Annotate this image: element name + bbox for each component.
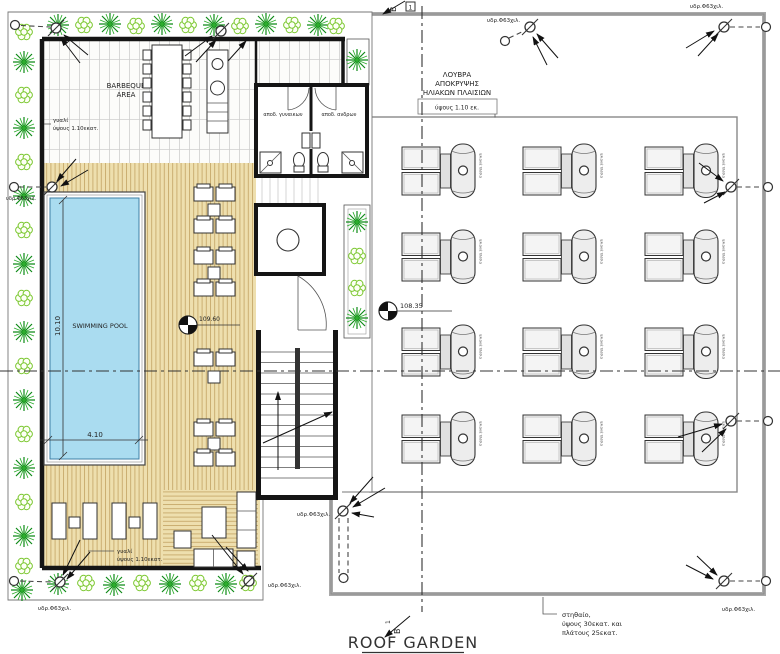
drain-label: υδρ.Φ63χιλ. bbox=[268, 583, 301, 589]
coffee-table bbox=[202, 507, 226, 538]
louver-note-line3: ΗΛΙΑΚΩΝ ΠΛΑΙΣΙΩΝ bbox=[423, 89, 491, 97]
side-table bbox=[208, 267, 220, 279]
sunbed bbox=[112, 503, 126, 539]
barbeque-label-2: AREA bbox=[117, 91, 136, 99]
toilet-icon bbox=[318, 153, 329, 173]
pool-width-value: 4.10 bbox=[87, 431, 103, 439]
section-number-top: 1 bbox=[409, 5, 413, 12]
wc-women-label: αποδ. γυναικων bbox=[263, 112, 302, 118]
plan-canvas: ηλιακά πλ/σια ΛΟΥΒΡΑ ΑΠΟΚΡΥΨΗΣ ΗΛΙΑΚΩΝ Π… bbox=[0, 0, 780, 654]
swimming-pool: SWIMMING POOL 10.10 4.10 bbox=[40, 192, 148, 465]
parapet-note-2: ύψους 30εκατ. και bbox=[562, 620, 622, 628]
stair-divider-wall bbox=[295, 348, 300, 469]
side-table bbox=[208, 371, 220, 383]
side-table bbox=[208, 438, 220, 450]
sunbed bbox=[52, 503, 66, 539]
drain-label: υδρ.Φ63χιλ. bbox=[297, 512, 330, 518]
parapet-note-1: στηθαίο, bbox=[562, 611, 591, 619]
glass-note-top-2: ύψους 1.10εκατ. bbox=[53, 125, 99, 132]
roof-garden-plan: ηλιακά πλ/σια ΛΟΥΒΡΑ ΑΠΟΚΡΥΨΗΣ ΗΛΙΑΚΩΝ Π… bbox=[0, 0, 780, 654]
parapet-note-3: πλάτους 25εκατ. bbox=[562, 629, 617, 637]
dining-table bbox=[152, 45, 182, 138]
toilet-icon bbox=[294, 153, 305, 173]
burner-icon bbox=[211, 81, 225, 95]
restrooms: αποδ. γυναικων αποδ. ανδρων bbox=[256, 85, 367, 176]
drawing-title: ROOF GARDEN bbox=[348, 633, 478, 653]
roof-level-value: 108.35 bbox=[400, 302, 423, 310]
sofa-right bbox=[237, 492, 256, 548]
louver-note-line2: ΑΠΟΚΡΥΨΗΣ bbox=[435, 80, 479, 88]
deck-level-value: 109.60 bbox=[199, 316, 220, 323]
stool bbox=[174, 531, 191, 548]
pool-length-value: 10.10 bbox=[54, 316, 62, 336]
wc-men-label: αποδ. ανδρων bbox=[322, 112, 357, 118]
side-table bbox=[208, 204, 220, 216]
drain-label: υδρ.Φ63χιλ. bbox=[6, 196, 37, 202]
sunbed bbox=[143, 503, 157, 539]
bbq-counter bbox=[207, 50, 228, 133]
glass-note-bottom-2: ύψους 1.10εκατ. bbox=[117, 556, 163, 563]
louver-height-note: ύψους 1.10 εκ. bbox=[435, 105, 479, 112]
sunbed bbox=[83, 503, 97, 539]
drain-label: υδρ.Φ63χιλ. bbox=[487, 18, 520, 24]
solar-roof-block: ΛΟΥΒΡΑ ΑΠΟΚΡΥΨΗΣ ΗΛΙΑΚΩΝ ΠΛΑΙΣΙΩΝ ύψους … bbox=[331, 14, 764, 594]
drain-label: υδρ.Φ63χιλ. bbox=[690, 4, 723, 10]
parapet-note: στηθαίο, ύψους 30εκατ. και πλάτους 25εκα… bbox=[543, 597, 622, 637]
drain-label: υδρ.Φ63χιλ. bbox=[722, 607, 755, 613]
louver-note-line1: ΛΟΥΒΡΑ bbox=[443, 71, 472, 79]
pool-label: SWIMMING POOL bbox=[72, 322, 128, 330]
barbeque-label-1: BARBEQUE bbox=[107, 82, 146, 90]
shaft-icon bbox=[277, 229, 299, 251]
urinal-icon bbox=[312, 133, 320, 148]
side-table bbox=[129, 517, 140, 528]
urinal-icon bbox=[302, 133, 310, 148]
sink-icon bbox=[212, 59, 223, 70]
side-planter bbox=[344, 205, 370, 338]
drain-label: υδρ.Φ63χιλ. bbox=[38, 606, 71, 612]
sofa-corner bbox=[237, 551, 255, 567]
side-table bbox=[69, 517, 80, 528]
section-number-bottom: 1 bbox=[385, 620, 392, 624]
glass-note-bottom-1: γυαλί bbox=[117, 548, 132, 555]
section-letter-top: Β bbox=[389, 7, 398, 13]
glass-note-top-1: γυαλί bbox=[53, 117, 68, 124]
title-text: ROOF GARDEN bbox=[348, 633, 478, 652]
